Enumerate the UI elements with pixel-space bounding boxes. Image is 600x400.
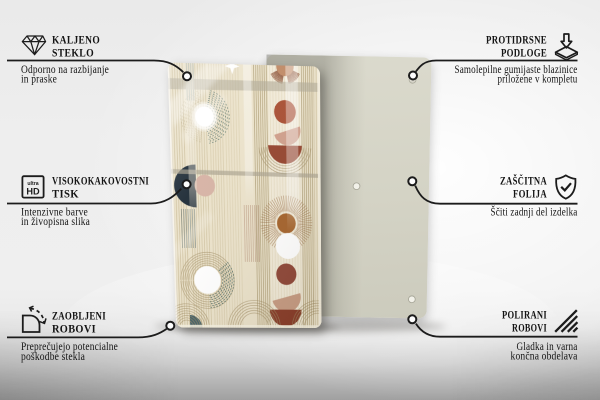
svg-text:HD: HD xyxy=(26,187,40,197)
svg-text:ROBOVI: ROBOVI xyxy=(52,322,96,336)
svg-text:končna obdelava: končna obdelava xyxy=(511,351,578,363)
svg-text:POLIRANI: POLIRANI xyxy=(502,307,547,321)
svg-text:poškodbe stekla: poškodbe stekla xyxy=(21,351,85,363)
svg-text:ZAŠČITNA: ZAŠČITNA xyxy=(500,173,547,187)
svg-text:STEKLO: STEKLO xyxy=(52,45,94,59)
svg-text:in praske: in praske xyxy=(21,73,57,85)
svg-text:VISOKOKAKOVOSTNI: VISOKOKAKOVOSTNI xyxy=(52,173,149,187)
svg-text:ROBOVI: ROBOVI xyxy=(512,321,547,335)
svg-text:TISK: TISK xyxy=(52,186,79,200)
svg-text:PROTIDRSNE: PROTIDRSNE xyxy=(486,32,547,46)
svg-text:FOLIJA: FOLIJA xyxy=(513,186,547,200)
svg-text:Ščiti zadnji del izdelka: Ščiti zadnji del izdelka xyxy=(491,206,578,218)
svg-text:in živopisna slika: in živopisna slika xyxy=(21,216,90,228)
svg-text:priložene v kompletu: priložene v kompletu xyxy=(498,73,578,85)
svg-text:KALJENO: KALJENO xyxy=(52,32,100,46)
svg-text:ZAOBLJENI: ZAOBLJENI xyxy=(52,308,106,322)
svg-text:PODLOGE: PODLOGE xyxy=(501,45,547,59)
